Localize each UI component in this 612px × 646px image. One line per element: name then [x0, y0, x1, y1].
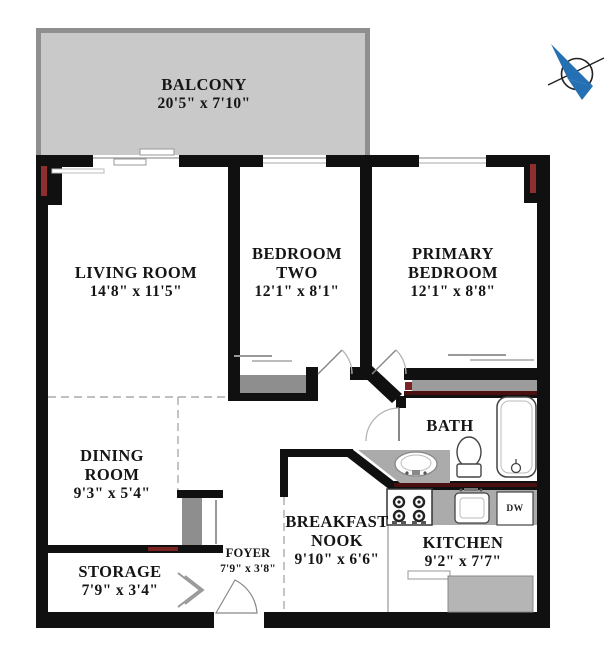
- primary-bedroom-door: [372, 350, 406, 374]
- room-label-nook: BREAKFAST NOOK 9'10" x 6'6": [285, 512, 388, 569]
- primary-dims: 12'1" x 8'8": [408, 282, 498, 301]
- room-label-bedroom-two: BEDROOM TWO 12'1" x 8'1": [252, 244, 342, 301]
- toilet: [457, 437, 481, 477]
- nook-dims: 9'10" x 6'6": [285, 550, 388, 569]
- kitchen-name: KITCHEN: [423, 533, 504, 552]
- storage-bifold-door: [178, 573, 203, 607]
- kitchen-sink: [455, 488, 489, 523]
- foyer-dims: 7'9" x 3'8": [220, 561, 276, 577]
- wall-stripe-bath: [404, 391, 537, 395]
- entry-door: [216, 580, 257, 613]
- dishwasher-text: DW: [506, 504, 523, 514]
- room-label-storage: STORAGE 7'9" x 3'4": [78, 562, 161, 600]
- bedroom-two-name-1: BEDROOM: [252, 244, 342, 263]
- dishwasher-label: DW: [506, 504, 523, 514]
- bath-door: [366, 408, 399, 441]
- primary-name-1: PRIMARY: [408, 244, 498, 263]
- dining-name-2: ROOM: [74, 465, 151, 484]
- room-label-balcony: BALCONY 20'5" x 7'10": [157, 75, 250, 113]
- refrigerator: [448, 576, 533, 612]
- storage-dims: 7'9" x 3'4": [78, 581, 161, 600]
- wall-marker-storage: [148, 547, 178, 551]
- corner-marker-right: [530, 164, 536, 193]
- compass-icon: [548, 44, 604, 100]
- dining-name-1: DINING: [74, 446, 151, 465]
- entry-gap: [214, 612, 264, 628]
- wall-stripe-kitchen: [394, 483, 537, 487]
- room-label-foyer: FOYER 7'9" x 3'8": [220, 545, 276, 577]
- balcony-name: BALCONY: [157, 75, 250, 94]
- room-label-kitchen: KITCHEN 9'2" x 7'7": [423, 533, 504, 571]
- nook-name-1: BREAKFAST: [285, 512, 388, 531]
- room-label-living: LIVING ROOM 14'8" x 11'5": [75, 263, 197, 301]
- room-label-bath: BATH: [426, 416, 473, 435]
- floor-plan: BALCONY 20'5" x 7'10" LIVING ROOM 14'8" …: [0, 0, 612, 646]
- bedroom-two-name-2: TWO: [252, 263, 342, 282]
- kitchen-dims: 9'2" x 7'7": [423, 552, 504, 571]
- bath-name: BATH: [426, 416, 473, 435]
- foyer-name: FOYER: [220, 545, 276, 561]
- room-label-primary: PRIMARY BEDROOM 12'1" x 8'8": [408, 244, 498, 301]
- living-name: LIVING ROOM: [75, 263, 197, 282]
- dining-dims: 9'3" x 5'4": [74, 484, 151, 503]
- bathtub: [497, 397, 536, 477]
- counter-stub: [408, 571, 450, 579]
- stove: [387, 489, 432, 525]
- living-baseboard: [52, 169, 104, 173]
- living-dims: 14'8" x 11'5": [75, 282, 197, 301]
- bedroom-two-dims: 12'1" x 8'1": [252, 282, 342, 301]
- room-label-dining: DINING ROOM 9'3" x 5'4": [74, 446, 151, 503]
- corner-marker-left: [41, 166, 47, 196]
- nook-name-2: NOOK: [285, 531, 388, 550]
- balcony-dims: 20'5" x 7'10": [157, 94, 250, 113]
- storage-name: STORAGE: [78, 562, 161, 581]
- bedroom-two-door: [318, 350, 352, 374]
- primary-name-2: BEDROOM: [408, 263, 498, 282]
